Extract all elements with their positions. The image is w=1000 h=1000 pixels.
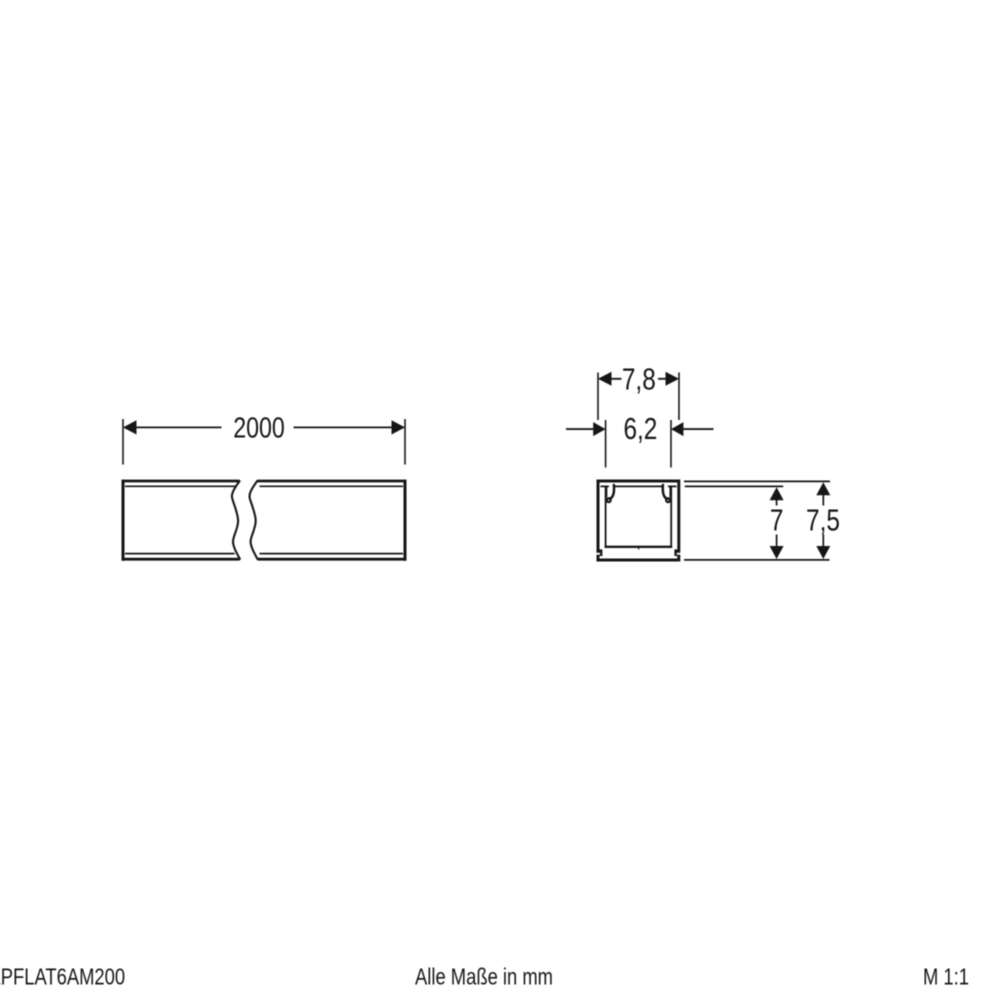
svg-text:7: 7 (770, 503, 784, 537)
svg-text:APFLAT6AM200: APFLAT6AM200 (0, 965, 125, 990)
svg-text:7,8: 7,8 (622, 362, 656, 396)
svg-text:2000: 2000 (233, 411, 285, 444)
svg-text:M 1:1: M 1:1 (923, 965, 969, 990)
svg-text:7,5: 7,5 (806, 503, 840, 537)
svg-text:6,2: 6,2 (623, 411, 657, 445)
svg-text:Alle Maße in mm: Alle Maße in mm (415, 965, 553, 990)
